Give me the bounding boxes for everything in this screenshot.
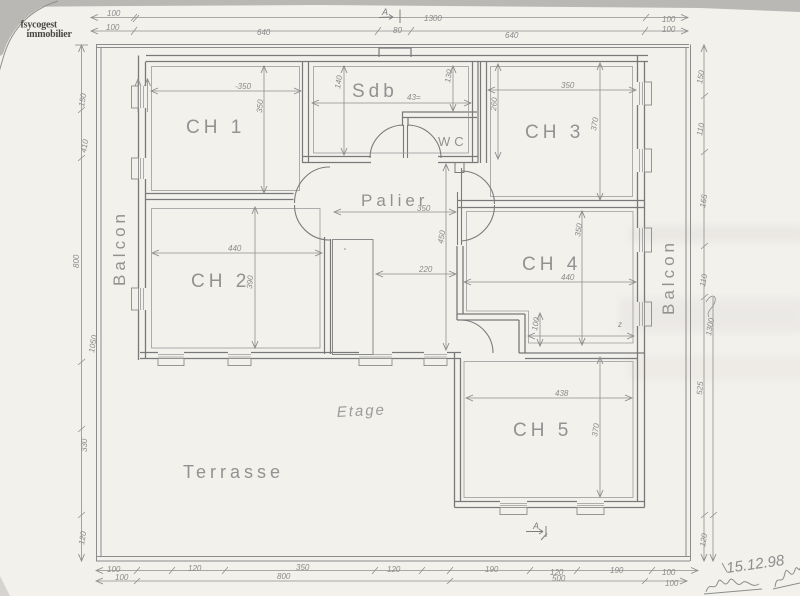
svg-text:120: 120 bbox=[387, 565, 401, 574]
svg-text:CH 3: CH 3 bbox=[525, 122, 584, 143]
svg-text:100: 100 bbox=[107, 9, 121, 18]
svg-text:CH 5: CH 5 bbox=[513, 420, 572, 441]
svg-text:immobilier: immobilier bbox=[27, 29, 73, 40]
svg-text:100: 100 bbox=[662, 25, 676, 34]
svg-text:100: 100 bbox=[662, 568, 676, 577]
svg-text:-350: -350 bbox=[235, 82, 252, 91]
svg-text:640: 640 bbox=[505, 31, 519, 40]
svg-text:220: 220 bbox=[418, 265, 433, 274]
svg-text:43=: 43= bbox=[407, 93, 421, 102]
svg-text:A: A bbox=[532, 521, 539, 531]
svg-text:CH 2: CH 2 bbox=[191, 271, 250, 292]
svg-text:Sdb: Sdb bbox=[352, 81, 398, 102]
svg-text:A: A bbox=[381, 7, 388, 17]
svg-text:Etage: Etage bbox=[336, 401, 386, 421]
svg-text:100: 100 bbox=[662, 15, 676, 24]
svg-text:CH 1: CH 1 bbox=[186, 117, 245, 138]
svg-text:440: 440 bbox=[228, 244, 242, 253]
svg-text:Balcon: Balcon bbox=[110, 210, 129, 286]
svg-text:1300: 1300 bbox=[424, 14, 442, 23]
svg-text:260: 260 bbox=[489, 97, 499, 113]
svg-text:440: 440 bbox=[561, 273, 575, 282]
svg-text:190: 190 bbox=[610, 566, 624, 575]
svg-text:z: z bbox=[617, 320, 622, 329]
svg-text:100: 100 bbox=[115, 573, 129, 582]
svg-text:800: 800 bbox=[72, 254, 81, 268]
svg-text:CH 4: CH 4 bbox=[522, 254, 581, 275]
svg-text:640: 640 bbox=[257, 28, 271, 37]
svg-text:120: 120 bbox=[188, 564, 202, 573]
svg-text:438: 438 bbox=[555, 389, 569, 398]
svg-text:350: 350 bbox=[255, 99, 265, 114]
svg-text:800: 800 bbox=[277, 572, 291, 581]
svg-text:80: 80 bbox=[393, 26, 402, 35]
svg-text:525: 525 bbox=[695, 381, 705, 396]
svg-text:190: 190 bbox=[485, 565, 499, 574]
svg-text:WC: WC bbox=[438, 134, 468, 149]
svg-text:350: 350 bbox=[417, 204, 431, 213]
svg-text:350: 350 bbox=[561, 81, 575, 90]
svg-text:Balcon: Balcon bbox=[659, 239, 678, 315]
svg-text:500: 500 bbox=[552, 574, 566, 583]
svg-text:100: 100 bbox=[106, 23, 120, 32]
svg-text:390: 390 bbox=[245, 275, 255, 290]
svg-text:100: 100 bbox=[665, 579, 679, 588]
svg-text:350: 350 bbox=[296, 563, 310, 572]
svg-text:330: 330 bbox=[80, 438, 89, 452]
svg-text:Terrasse: Terrasse bbox=[183, 462, 284, 482]
